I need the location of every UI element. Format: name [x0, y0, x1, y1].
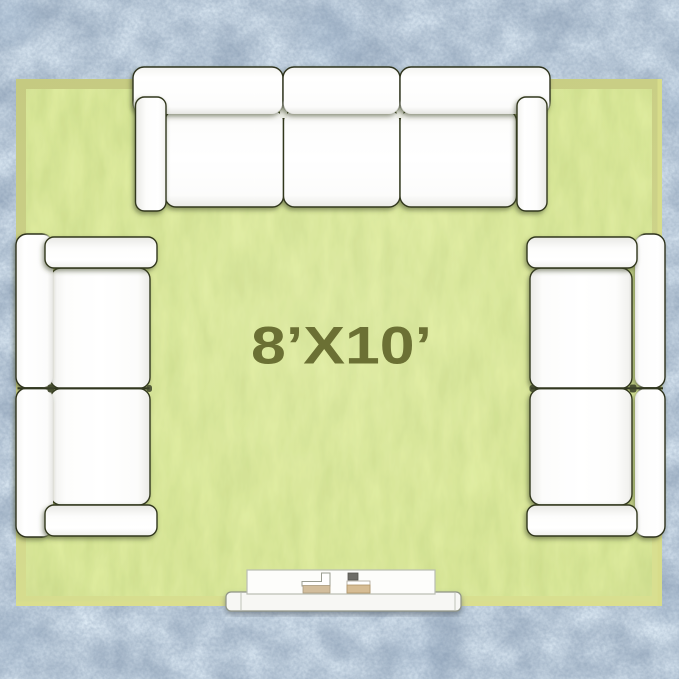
svg-text:8’X10’: 8’X10’ [251, 317, 432, 376]
